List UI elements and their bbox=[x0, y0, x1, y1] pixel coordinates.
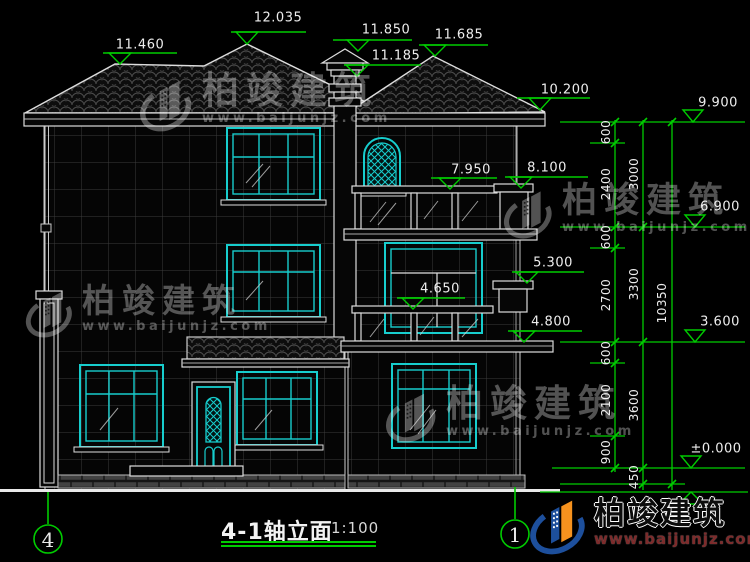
datum-3600: 3.600 bbox=[700, 315, 740, 330]
drawing-scale: 1:100 bbox=[331, 519, 379, 537]
title-underline bbox=[221, 545, 376, 547]
axis-bubble-4: 4 bbox=[42, 528, 55, 552]
ground-line bbox=[0, 489, 560, 492]
level-7950: 7.950 bbox=[451, 163, 491, 178]
watermark-url: www.baijunjz.com bbox=[202, 111, 391, 126]
watermark-url: www.baijunjz.com bbox=[446, 424, 635, 439]
window-sill bbox=[74, 447, 169, 452]
logo-brand: 柏竣建筑 bbox=[594, 499, 750, 530]
baijun-logo-icon bbox=[502, 183, 558, 239]
level-11460: 11.460 bbox=[116, 38, 165, 53]
baijun-logo-icon bbox=[24, 284, 78, 338]
level-11685: 11.685 bbox=[435, 28, 484, 43]
dim-600-c: 600 bbox=[599, 341, 613, 365]
baijun-logo-icon bbox=[138, 72, 198, 132]
entry-door bbox=[192, 382, 235, 477]
baijun-logo-icon bbox=[528, 491, 592, 555]
watermark-brand: 柏竣建筑 bbox=[446, 385, 635, 424]
datum-0000: ±0.000 bbox=[690, 442, 741, 457]
level-11185: 11.185 bbox=[372, 49, 421, 64]
baijun-logo: 柏竣建筑 www.baijunjz.com bbox=[528, 491, 750, 555]
dim-900: 900 bbox=[599, 440, 613, 464]
porch-roof bbox=[182, 337, 349, 367]
watermark: 柏竣建筑 www.baijunjz.com bbox=[138, 72, 391, 132]
level-11850: 11.850 bbox=[362, 23, 411, 38]
dim-450: 450 bbox=[627, 465, 641, 489]
level-10200: 10.200 bbox=[541, 83, 590, 98]
window-sill bbox=[231, 445, 323, 450]
level-12035: 12.035 bbox=[254, 11, 303, 26]
cad-elevation-drawing: 11.460 12.035 11.850 11.185 11.685 10.20… bbox=[0, 0, 750, 562]
watermark: 柏竣建筑 www.baijunjz.com bbox=[384, 385, 635, 443]
baijun-logo-icon bbox=[384, 385, 442, 443]
title-underline bbox=[221, 541, 376, 543]
level-8100: 8.100 bbox=[527, 161, 567, 176]
logo-url: www.baijunjz.com bbox=[594, 530, 750, 548]
level-4800: 4.800 bbox=[531, 315, 571, 330]
dim-600-a: 600 bbox=[599, 120, 613, 144]
watermark-brand: 柏竣建筑 bbox=[562, 183, 750, 220]
level-4650: 4.650 bbox=[420, 282, 460, 297]
watermark-brand: 柏竣建筑 bbox=[202, 72, 391, 111]
watermark-brand: 柏竣建筑 bbox=[82, 284, 271, 319]
dim-2700: 2700 bbox=[599, 279, 613, 312]
watermark-url: www.baijunjz.com bbox=[82, 319, 271, 334]
entry-step bbox=[130, 466, 243, 476]
axis-bubble-1: 1 bbox=[509, 523, 522, 547]
watermark-url: www.baijunjz.com bbox=[562, 220, 750, 235]
watermark: 柏竣建筑 www.baijunjz.com bbox=[502, 183, 750, 239]
level-5300: 5.300 bbox=[533, 256, 573, 271]
watermark: 柏竣建筑 www.baijunjz.com bbox=[24, 284, 271, 338]
dim-3300: 3300 bbox=[627, 268, 641, 301]
datum-9900: 9.900 bbox=[698, 96, 738, 111]
window-sill bbox=[221, 200, 326, 205]
dim-10350: 10350 bbox=[655, 283, 669, 324]
